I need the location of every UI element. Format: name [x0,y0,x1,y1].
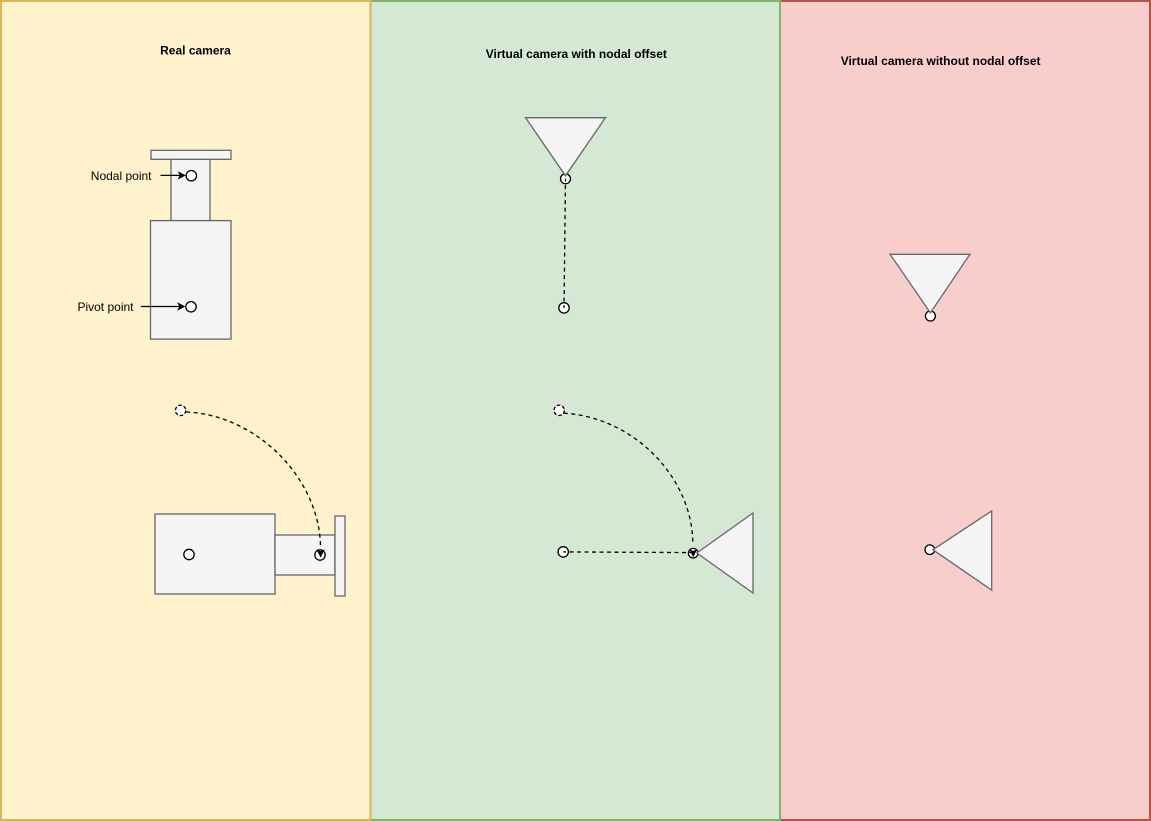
svg-text:Virtual camera with nodal offs: Virtual camera with nodal offset [486,47,667,61]
svg-text:Pivot point: Pivot point [77,300,134,314]
svg-text:Nodal point: Nodal point [91,169,152,183]
svg-text:Virtual camera without nodal o: Virtual camera without nodal offset [841,54,1041,68]
svg-text:Real camera: Real camera [160,44,231,58]
